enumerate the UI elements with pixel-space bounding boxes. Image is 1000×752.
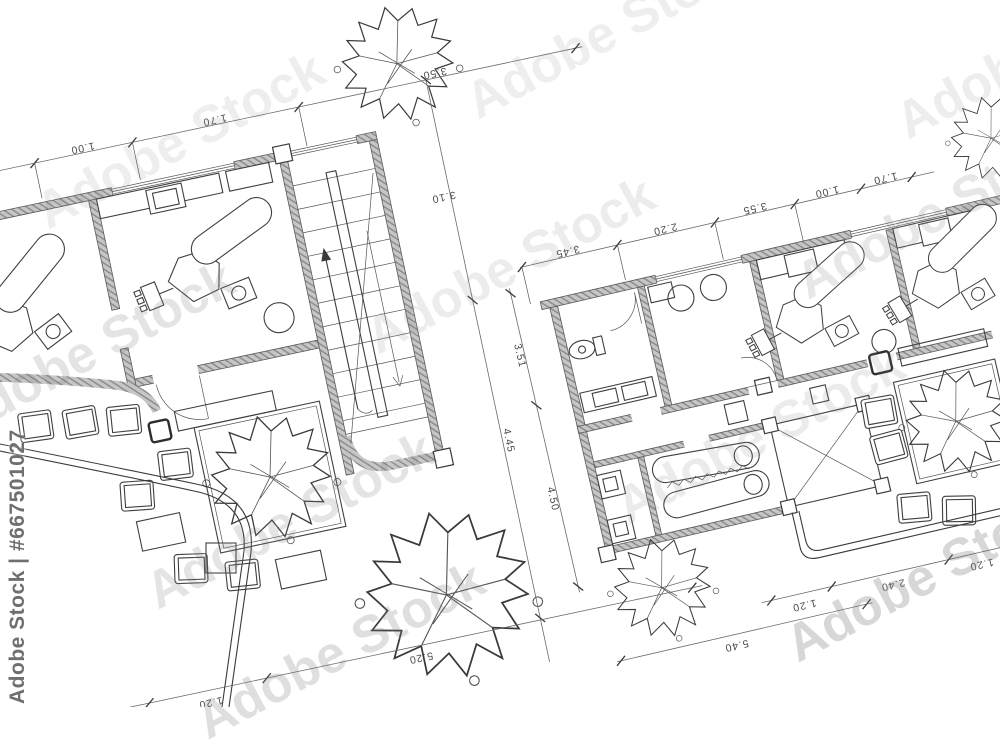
reception-desk-return (148, 419, 172, 443)
tree-icon (340, 494, 557, 706)
planter (191, 400, 352, 559)
stock-id-watermark: Adobe Stock | #667501027 (6, 429, 30, 704)
dimension-label: 2.20 (652, 220, 679, 237)
dimension-label: 5.40 (723, 637, 750, 654)
dental-chair-icon (117, 189, 303, 340)
cabinet (810, 385, 829, 404)
dimension-label: 1.20 (791, 597, 818, 614)
dimension-label: 4.45 (500, 427, 517, 453)
dental-chair-icon (0, 224, 112, 399)
dimension-label: 2.40 (880, 576, 907, 593)
blueprint-canvas: 1.00 1.70 3.50 3.10 4.45 1.20 5.20 (0, 0, 1000, 707)
dimension-label: 1.70 (872, 169, 899, 186)
planter (893, 359, 1000, 484)
side-table (275, 550, 326, 589)
waiting-chair-icon (869, 429, 908, 466)
dimension-label: 1.00 (813, 183, 840, 200)
dimension-label: 1.00 (69, 139, 95, 156)
dimension-label: 3.45 (554, 243, 581, 260)
waiting-chair-icon (157, 448, 193, 481)
toilet-icon (567, 336, 605, 361)
dimension-line: 3.10 4.45 (406, 73, 561, 666)
dimension-label: 5.20 (408, 649, 434, 666)
dimension-line: 1.20 5.20 (109, 582, 705, 707)
stock-photo-page: { "watermark": { "tile_text": "Adobe Sto… (0, 0, 1000, 707)
dimension-line: 5.40 (615, 599, 876, 679)
waiting-area (15, 358, 326, 635)
right-floor-plan: 3.45 2.20 3.55 1.00 1.70 3.51 4.50 5.40 (481, 87, 1000, 685)
dimension-line: 1.20 2.40 1.20 (761, 538, 1000, 620)
waiting-chair-icon (861, 395, 899, 429)
stool-icon (261, 300, 297, 336)
walls (0, 124, 453, 576)
dimension-label: 4.50 (544, 486, 561, 513)
waiting-chair-icon (62, 405, 100, 439)
dimension-label: 1.70 (201, 111, 227, 128)
dimension-label: 1.20 (197, 694, 223, 707)
dimension-label: 3.55 (741, 200, 768, 217)
tree-icon (937, 87, 1000, 194)
waiting-chair-icon (120, 480, 155, 511)
dimension-label: 1.20 (968, 556, 995, 573)
dimension-label: 3.51 (511, 343, 528, 370)
coffee-table (136, 513, 185, 551)
sink-icon (698, 272, 729, 303)
dimension-line: 3.45 2.20 3.55 1.00 1.70 (515, 161, 943, 305)
side-table (869, 351, 893, 375)
tree-icon (324, 0, 473, 140)
waiting-chair-icon (174, 554, 208, 584)
cabinet (724, 401, 748, 425)
waiting-chair-icon (106, 404, 142, 436)
door-icon (603, 292, 641, 330)
tree-icon (889, 358, 1000, 492)
waiting-chair-icon (897, 492, 932, 524)
dimension-label: 3.10 (430, 188, 456, 205)
tree-icon (191, 403, 351, 559)
